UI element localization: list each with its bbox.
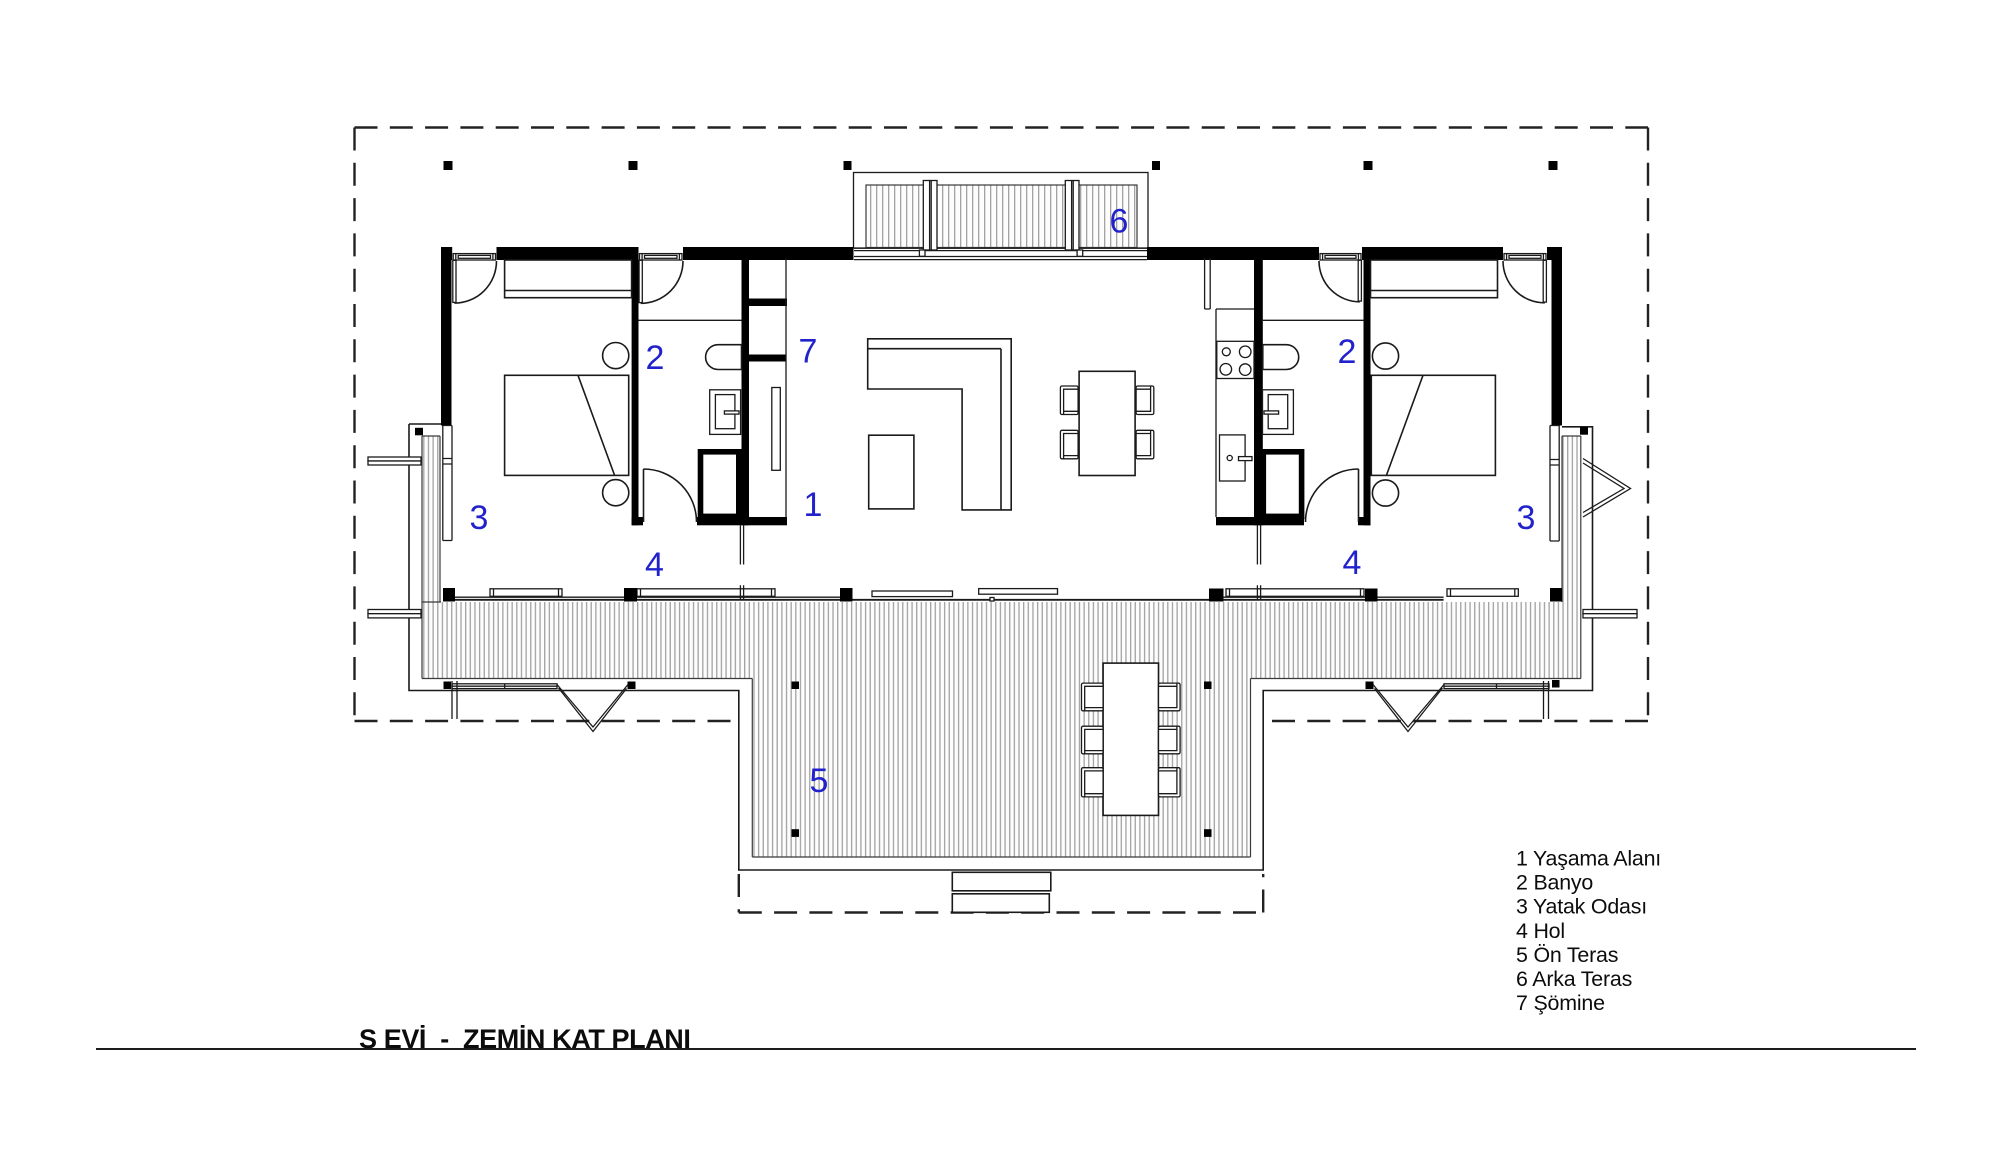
svg-text:6 Arka Teras: 6 Arka Teras — [1516, 967, 1632, 991]
svg-text:4: 4 — [1343, 544, 1362, 582]
svg-text:3: 3 — [470, 499, 489, 537]
svg-text:5 Ön Teras: 5 Ön Teras — [1516, 943, 1618, 967]
svg-text:1 Yaşama Alanı: 1 Yaşama Alanı — [1516, 847, 1661, 871]
svg-text:2 Banyo: 2 Banyo — [1516, 871, 1593, 895]
svg-text:4: 4 — [645, 546, 664, 584]
svg-text:7: 7 — [799, 333, 818, 371]
svg-text:2: 2 — [646, 339, 665, 377]
svg-text:3: 3 — [1517, 499, 1536, 537]
svg-text:7 Şömine: 7 Şömine — [1516, 991, 1605, 1015]
svg-text:5: 5 — [810, 762, 829, 800]
svg-text:1: 1 — [804, 486, 823, 524]
svg-text:3 Yatak Odası: 3 Yatak Odası — [1516, 895, 1647, 919]
svg-text:6: 6 — [1110, 203, 1129, 241]
svg-text:2: 2 — [1338, 333, 1357, 371]
svg-text:4 Hol: 4 Hol — [1516, 919, 1565, 943]
